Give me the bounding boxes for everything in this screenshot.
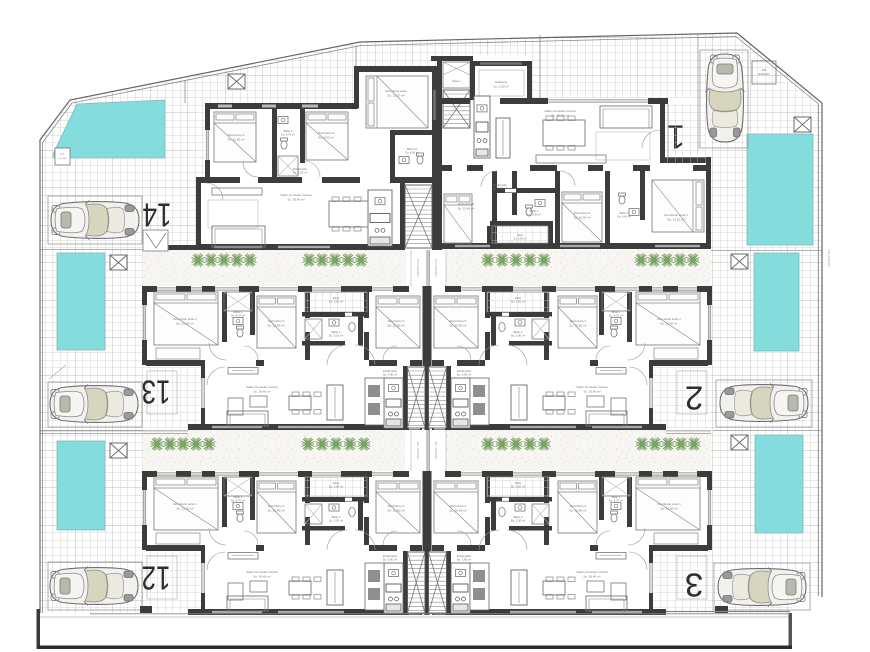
- svg-text:Su: 3,00 m²: Su: 3,00 m²: [511, 300, 526, 304]
- svg-text:Su: 26,40 m²: Su: 26,40 m²: [253, 575, 270, 579]
- svg-text:VIAL PEATONAL: VIAL PEATONAL: [416, 441, 419, 460]
- svg-text:Trastero: Trastero: [452, 80, 461, 83]
- svg-text:Dormitorio 5: Dormitorio 5: [458, 202, 475, 206]
- svg-text:Su: 26,40 m²: Su: 26,40 m²: [583, 575, 600, 579]
- svg-text:Su: 4,00 m²: Su: 4,00 m²: [405, 151, 419, 155]
- svg-text:Su: 4,70 m²: Su: 4,70 m²: [231, 314, 246, 318]
- svg-text:Dormitorio suite 1: Dormitorio suite 1: [173, 317, 197, 321]
- svg-text:Su: 3m²: Su: 3m²: [59, 157, 67, 160]
- svg-text:Salón-Comedor-Cocina: Salón-Comedor-Cocina: [246, 385, 278, 389]
- svg-text:Su: 5,00 m²: Su: 5,00 m²: [493, 85, 509, 89]
- svg-text:VIAL: VIAL: [761, 68, 767, 72]
- svg-text:Gabinete: Gabinete: [495, 80, 508, 84]
- svg-text:Su: 10,80 m²: Su: 10,80 m²: [267, 324, 284, 328]
- svg-text:Dormitorio suite 1: Dormitorio suite 1: [657, 502, 681, 506]
- svg-text:Su: 11,40 m²: Su: 11,40 m²: [458, 207, 475, 211]
- svg-text:Dormitorio 3: Dormitorio 3: [450, 319, 467, 323]
- svg-text:Su: 4,70 m²: Su: 4,70 m²: [609, 314, 624, 318]
- svg-text:Su: 10,60 m²: Su: 10,60 m²: [387, 324, 404, 328]
- svg-text:Dormitorio 3: Dormitorio 3: [318, 131, 335, 135]
- svg-text:Su: 10,60 m²: Su: 10,60 m²: [449, 324, 466, 328]
- svg-text:Su: 3,80 m²: Su: 3,80 m²: [457, 373, 472, 377]
- svg-text:Su: 5,30 m²: Su: 5,30 m²: [527, 213, 541, 217]
- svg-text:Su: 30,50 m²: Su: 30,50 m²: [551, 114, 568, 118]
- svg-text:Su: 14,20 m²: Su: 14,20 m²: [667, 218, 684, 222]
- svg-text:Salón-Comedor-Cocina: Salón-Comedor-Cocina: [576, 570, 608, 574]
- svg-text:Su: 10,80 m²: Su: 10,80 m²: [267, 509, 284, 513]
- svg-text:13: 13: [142, 374, 171, 411]
- svg-text:Su: 12,60 m²: Su: 12,60 m²: [176, 322, 193, 326]
- svg-text:Dormitorio 3: Dormitorio 3: [388, 319, 405, 323]
- svg-text:Su: 4,70 m²: Su: 4,70 m²: [231, 499, 246, 503]
- svg-text:Salón-Comedor-Cocina: Salón-Comedor-Cocina: [280, 193, 312, 197]
- svg-text:Dormitorio 2: Dormitorio 2: [570, 319, 587, 323]
- svg-text:Su: 12,60 m²: Su: 12,60 m²: [660, 507, 677, 511]
- svg-text:Su: 10,60 m²: Su: 10,60 m²: [449, 509, 466, 513]
- svg-text:Salón-Comedor-Cocina: Salón-Comedor-Cocina: [576, 385, 608, 389]
- svg-text:Dormitorio suite 1: Dormitorio suite 1: [173, 502, 197, 506]
- svg-text:Su: 3,80 m²: Su: 3,80 m²: [383, 558, 398, 562]
- svg-text:Su: 4,70 m²: Su: 4,70 m²: [281, 133, 295, 137]
- svg-text:3: 3: [685, 567, 703, 604]
- svg-text:Dormitorio 2: Dormitorio 2: [268, 504, 285, 508]
- svg-text:Su: 26,40 m²: Su: 26,40 m²: [583, 390, 600, 394]
- svg-text:VIAL PEATONAL: VIAL PEATONAL: [416, 259, 419, 278]
- svg-text:Dormitorio suite 1: Dormitorio suite 1: [657, 317, 681, 321]
- svg-text:Su: 9,20 m²: Su: 9,20 m²: [318, 136, 334, 140]
- svg-text:Dormitorio suite: Dormitorio suite: [385, 89, 406, 93]
- svg-text:Su: 13,70 m²: Su: 13,70 m²: [387, 94, 404, 98]
- svg-text:Dormitorio 3: Dormitorio 3: [388, 504, 405, 508]
- svg-text:Dormitorio 3: Dormitorio 3: [450, 504, 467, 508]
- svg-text:VIAL RODADO: VIAL RODADO: [827, 249, 831, 267]
- svg-text:Su: 3,80 m²: Su: 3,80 m²: [383, 373, 398, 377]
- svg-text:Su: 10,60 m²: Su: 10,60 m²: [387, 509, 404, 513]
- svg-text:Su: 2,90 m²: Su: 2,90 m²: [513, 237, 527, 241]
- svg-text:Su: 3,80 m²: Su: 3,80 m²: [457, 558, 472, 562]
- svg-text:RODADO: RODADO: [758, 72, 769, 76]
- svg-text:Baño 2: Baño 2: [530, 209, 539, 213]
- svg-text:Su: 36,40 m²: Su: 36,40 m²: [287, 198, 304, 202]
- svg-text:Patio: Patio: [517, 233, 523, 237]
- svg-text:Su: 3,00 m²: Su: 3,00 m²: [511, 485, 526, 489]
- svg-text:Su: 3,30 m²: Su: 3,30 m²: [329, 334, 344, 338]
- svg-text:Su: 26,40 m²: Su: 26,40 m²: [253, 390, 270, 394]
- svg-text:Su: 3,30 m²: Su: 3,30 m²: [329, 519, 344, 523]
- svg-text:Su: 3,00 m²: Su: 3,00 m²: [329, 300, 344, 304]
- svg-text:Salón-Comedor-Cocina: Salón-Comedor-Cocina: [246, 570, 278, 574]
- svg-text:Dormitorio 2: Dormitorio 2: [268, 319, 285, 323]
- svg-text:Salón-Comedor-Cocina: Salón-Comedor-Cocina: [544, 109, 576, 113]
- svg-text:Su: 10,80 m²: Su: 10,80 m²: [227, 138, 244, 142]
- svg-text:Su: 10,80 m²: Su: 10,80 m²: [569, 509, 586, 513]
- svg-text:Su: 10,80 m²: Su: 10,80 m²: [569, 324, 586, 328]
- svg-text:Su: 3,30 m²: Su: 3,30 m²: [511, 519, 526, 523]
- svg-text:VIAL PEATONAL: VIAL PEATONAL: [434, 259, 437, 278]
- svg-text:2: 2: [685, 380, 703, 417]
- svg-text:Baño 1: Baño 1: [620, 211, 629, 215]
- svg-text:Su: 10,90 m²: Su: 10,90 m²: [573, 216, 590, 220]
- svg-text:Baño 2: Baño 2: [284, 129, 293, 133]
- svg-text:Su: 5,20 m²: Su: 5,20 m²: [493, 187, 508, 191]
- svg-text:Su: 3,30 m²: Su: 3,30 m²: [511, 334, 526, 338]
- svg-text:E.T.: E.T.: [60, 153, 64, 156]
- svg-text:Dormitorio suite 1: Dormitorio suite 1: [664, 213, 688, 217]
- svg-text:Su: 12,60 m²: Su: 12,60 m²: [176, 507, 193, 511]
- svg-text:Su: 4,40 m²: Su: 4,40 m²: [617, 215, 631, 219]
- svg-text:Baño 12: Baño 12: [407, 147, 418, 151]
- svg-text:Su: 3,00 m²: Su: 3,00 m²: [329, 485, 344, 489]
- svg-text:Dormitorio 2: Dormitorio 2: [574, 211, 591, 215]
- svg-text:12: 12: [142, 560, 171, 597]
- svg-text:Dormitorio 2: Dormitorio 2: [570, 504, 587, 508]
- svg-text:Su: 4,70 m²: Su: 4,70 m²: [609, 499, 624, 503]
- svg-text:14: 14: [143, 197, 172, 234]
- svg-text:Dormitorio 2: Dormitorio 2: [228, 133, 245, 137]
- svg-text:Su: 12,60 m²: Su: 12,60 m²: [660, 322, 677, 326]
- svg-text:VIAL PEATONAL: VIAL PEATONAL: [434, 441, 437, 460]
- svg-text:Su: 1,20 m²: Su: 1,20 m²: [293, 171, 308, 175]
